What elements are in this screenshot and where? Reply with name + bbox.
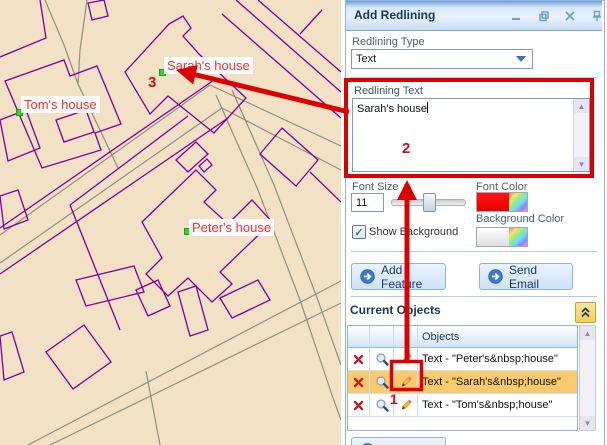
redlining-type-label: Redlining Type (352, 36, 425, 48)
partial-bottom-button[interactable] (351, 437, 446, 445)
background-color-label: Background Color (476, 213, 564, 225)
object-row-label: Text - "Sarah's&nbsp;house" (418, 371, 577, 393)
show-background-checkbox[interactable]: ✓ (352, 225, 366, 239)
map-label-sarahs-house: Sarah's house (164, 57, 253, 74)
font-color-picker[interactable] (476, 192, 528, 212)
text-caret (427, 102, 428, 113)
close-icon[interactable] (562, 9, 578, 23)
textarea-scrollbar[interactable]: ▲ ▼ (573, 99, 589, 171)
redlining-text-area[interactable]: Sarah's house ▲ ▼ (352, 98, 590, 172)
table-row-sarah-selected[interactable]: Text - "Sarah's&nbsp;house" (348, 371, 577, 394)
show-background-label: Show Background (369, 226, 458, 238)
current-objects-title: Current Objects (350, 303, 441, 317)
redlining-type-select[interactable]: Text (351, 49, 533, 69)
chevron-down-icon (516, 56, 526, 62)
collapse-section-button[interactable] (575, 302, 596, 323)
divider (351, 251, 597, 252)
map-label-peters-house: Peter's house (189, 219, 274, 236)
color-palette-icon (509, 228, 527, 246)
arrow-circle-icon (488, 269, 503, 284)
background-color-current (477, 228, 509, 246)
scroll-down-icon[interactable]: ▼ (574, 157, 589, 171)
table-row-tom[interactable]: Text - "Tom's&nbsp;house" (348, 394, 577, 417)
restore-icon[interactable] (536, 9, 552, 23)
zoom-to-icon[interactable] (370, 371, 394, 393)
scroll-up-icon[interactable]: ▲ (574, 99, 589, 113)
table-scrollbar[interactable]: ▲ ▼ (579, 325, 596, 431)
redlining-text-label: Redlining Text (354, 85, 423, 97)
current-objects-table: Objects Text - "Peter's&nbsp;house" (347, 325, 578, 431)
add-feature-button[interactable]: Add Feature (351, 263, 446, 290)
background-color-picker[interactable] (476, 227, 528, 247)
font-size-label: Font Size (352, 181, 398, 193)
panel-title: Add Redlining (354, 8, 435, 22)
zoom-to-icon[interactable] (370, 394, 394, 416)
font-color-current (477, 193, 509, 211)
object-row-label: Text - "Tom's&nbsp;house" (418, 394, 577, 416)
scroll-up-icon[interactable]: ▲ (580, 326, 595, 340)
double-chevron-up-icon (580, 307, 591, 318)
delete-icon[interactable] (348, 371, 370, 393)
divider (351, 77, 597, 78)
delete-icon[interactable] (348, 348, 370, 370)
screenshot-root: Sarah's house Tom's house Peter's house … (0, 0, 607, 445)
add-feature-label: Add Feature (381, 263, 437, 291)
font-size-value: 11 (356, 197, 367, 209)
edit-pencil-icon[interactable] (394, 348, 418, 370)
color-palette-icon (509, 193, 527, 211)
font-size-slider-thumb[interactable] (423, 193, 436, 212)
map-canvas[interactable]: Sarah's house Tom's house Peter's house (0, 0, 341, 445)
redlining-text-value: Sarah's house (357, 103, 427, 115)
zoom-to-icon[interactable] (370, 348, 394, 370)
delete-icon[interactable] (348, 394, 370, 416)
scroll-down-icon[interactable]: ▼ (580, 416, 595, 430)
redlining-type-value: Text (356, 53, 376, 65)
edit-pencil-icon[interactable] (394, 394, 418, 416)
table-row-peter[interactable]: Text - "Peter's&nbsp;house" (348, 348, 577, 371)
object-row-label: Text - "Peter's&nbsp;house" (418, 348, 577, 370)
edit-pencil-icon[interactable] (394, 371, 418, 393)
font-size-input[interactable]: 11 (351, 193, 384, 212)
objects-column-header: Objects (418, 326, 577, 347)
table-header-row: Objects (348, 326, 577, 348)
send-email-button[interactable]: Send Email (479, 263, 573, 290)
pin-icon[interactable] (589, 9, 605, 23)
minimize-icon[interactable] (508, 9, 524, 23)
divider (351, 296, 597, 297)
send-email-label: Send Email (509, 263, 564, 291)
arrow-circle-icon (360, 269, 375, 284)
map-label-toms-house: Tom's house (21, 96, 100, 113)
